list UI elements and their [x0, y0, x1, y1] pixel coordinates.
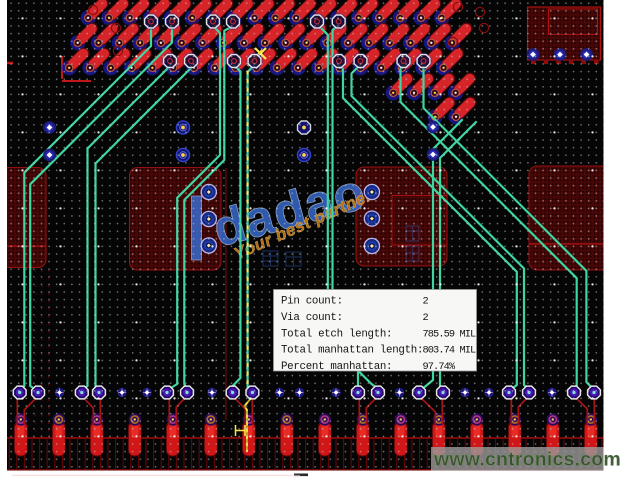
svg-text:803.74 MIL: 803.74 MIL	[423, 345, 477, 357]
svg-text:Pin count:: Pin count:	[281, 296, 343, 308]
svg-text:Via count:: Via count:	[281, 312, 343, 324]
svg-text:2: 2	[423, 312, 429, 324]
svg-text:97.74%: 97.74%	[423, 361, 456, 373]
svg-text:785.59 MIL: 785.59 MIL	[423, 328, 477, 340]
svg-text:Total etch length:: Total etch length:	[281, 328, 392, 340]
svg-text:2: 2	[423, 296, 429, 308]
svg-text:Total manhattan length:: Total manhattan length:	[281, 345, 423, 357]
svg-text:www.cntronics.com: www.cntronics.com	[433, 449, 621, 471]
svg-text:Percent manhattan:: Percent manhattan:	[281, 361, 392, 373]
